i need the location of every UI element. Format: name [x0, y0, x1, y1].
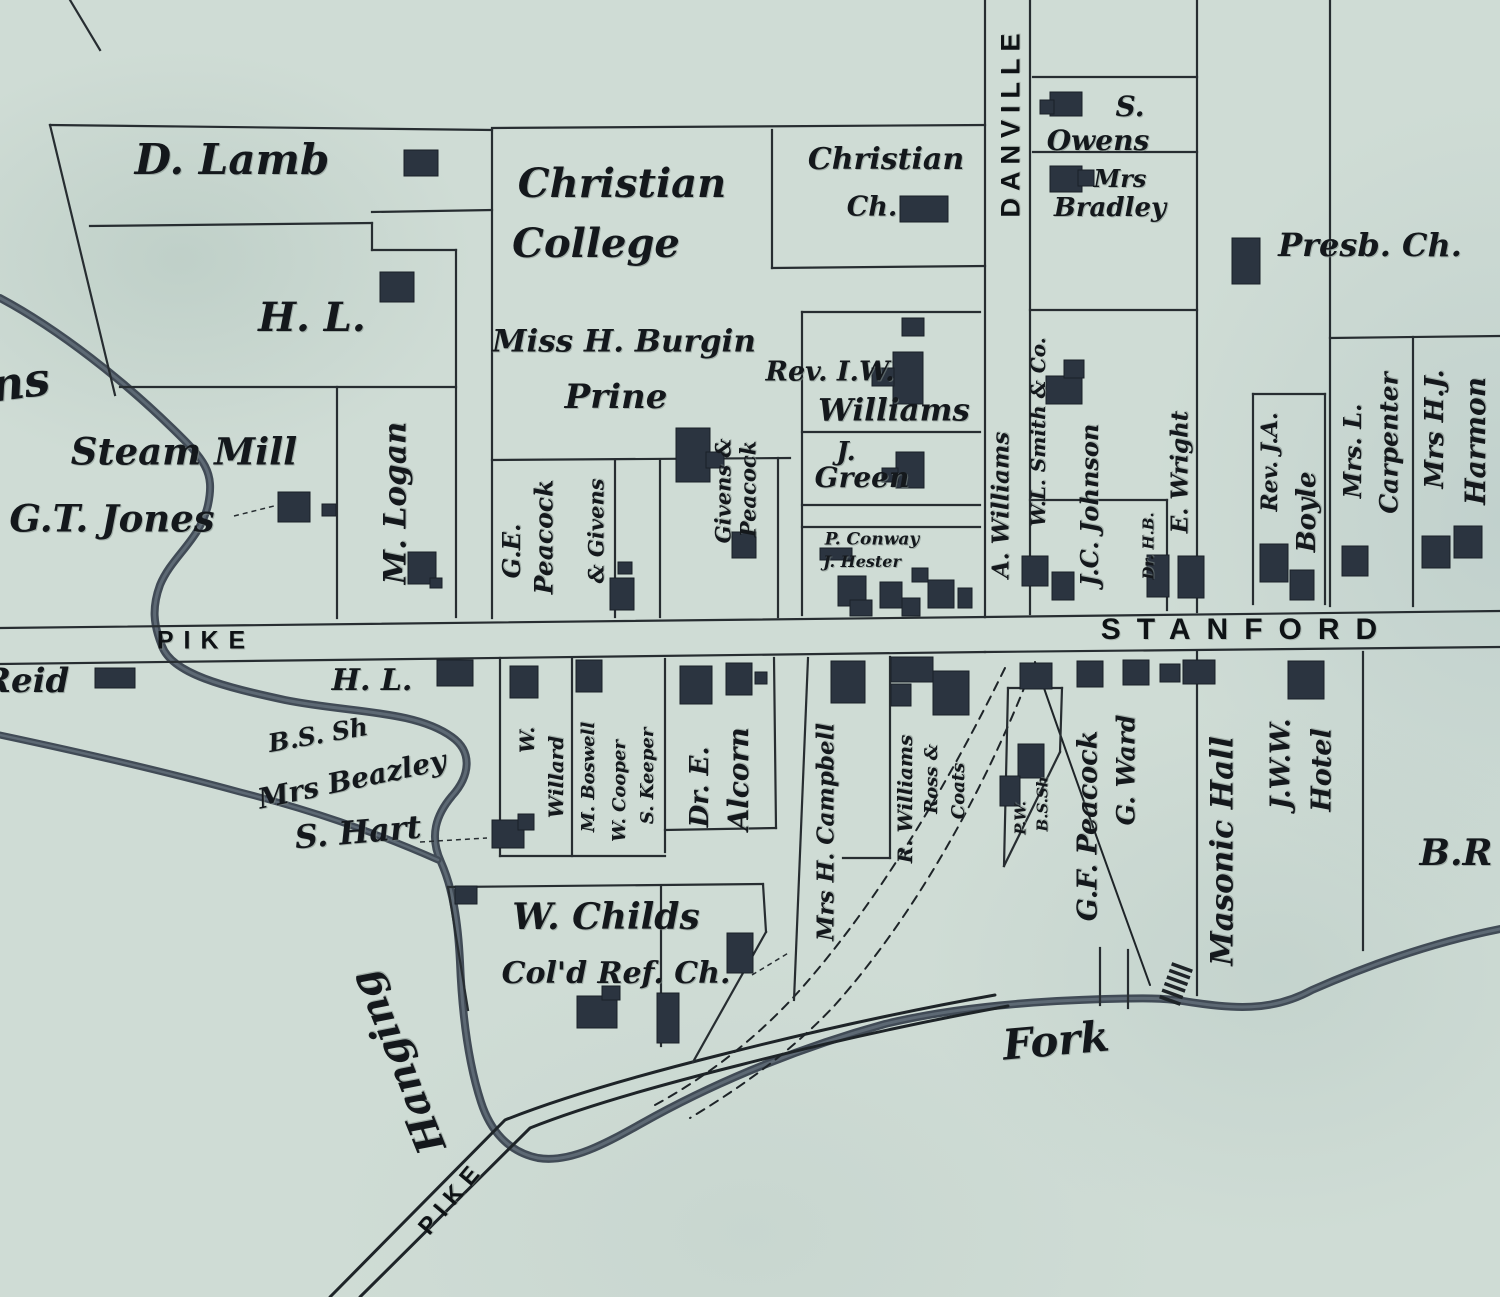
- map-label-gf-peacock: G.F. Peacock: [1075, 731, 1102, 922]
- map-label-williams: Williams: [818, 396, 970, 427]
- map-label-fork: Fork: [1001, 1015, 1111, 1066]
- map-label-bs-sh: B.S. Sh: [266, 714, 369, 756]
- map-label-ge-peacock-line2: Peacock: [532, 480, 557, 595]
- map-label-boyle: Boyle: [1294, 472, 1320, 553]
- map-label-j-hester: J. Hester: [823, 554, 901, 570]
- map-label-mrs-hj: Mrs H.J.: [1422, 369, 1448, 488]
- map-label-s-owens-line2: Owens: [1047, 127, 1149, 155]
- map-label-dr-e: Dr. E.: [687, 747, 713, 828]
- map-label-m-boswell: M. Boswell: [580, 722, 598, 832]
- map-label-jc-johnson: J.C. Johnson: [1078, 424, 1102, 586]
- map-label-rev-ja: Rev. J.A.: [1259, 412, 1281, 511]
- map-label-bs-sh-south: B.S.Sh: [1036, 776, 1051, 831]
- map-label-street-pike-south: PIKE: [415, 1157, 490, 1240]
- map-label-w-willard-line1: W.: [517, 727, 537, 753]
- map-label-g-ward: G. Ward: [1114, 715, 1139, 826]
- map-label-br-partial: B.R: [1420, 835, 1493, 871]
- map-label-layer: nsD. LambH. L.ChristianCollegeChristianC…: [0, 0, 1500, 1297]
- map-label-alcorn: Alcorn: [725, 727, 753, 830]
- map-label-gt-jones: G.T. Jones: [9, 501, 214, 538]
- map-label-jww: J.W.W.: [1268, 718, 1295, 809]
- town-plat-map: nsD. LambH. L.ChristianCollegeChristianC…: [0, 0, 1500, 1297]
- map-label-harmon: Harmon: [1462, 377, 1490, 505]
- map-label-street-danville: DANVILLE: [998, 27, 1025, 218]
- map-label-mrs-bradley-line2: Bradley: [1054, 195, 1166, 221]
- map-label-pw: P.W.: [1014, 801, 1029, 835]
- map-label-d-lamb: D. Lamb: [135, 139, 330, 181]
- map-label-ge-peacock-line3: & Givens: [586, 479, 607, 584]
- map-label-hanging: Hanging: [343, 965, 452, 1159]
- map-label-miss-burgin: Miss H. Burgin: [492, 327, 756, 358]
- map-label-street-pike-west: PIKE: [157, 629, 255, 654]
- map-label-r-williams: R. Williams: [895, 735, 915, 863]
- map-label-carpenter: Carpenter: [1377, 372, 1402, 513]
- map-label-presb-ch: Presb. Ch.: [1278, 229, 1462, 261]
- map-label-ross: Ross &: [923, 744, 941, 814]
- map-label-givens-peacock-line2: Peacock: [738, 441, 759, 537]
- map-label-coats: Coats: [950, 763, 968, 819]
- map-label-mrs-bradley-line1: Mrs: [1094, 167, 1147, 191]
- map-label-dr-hb: Dr. H.B.: [1142, 512, 1157, 579]
- map-label-w-willard-line2: Willard: [546, 736, 566, 818]
- map-label-mrs-campbell: Mrs H. Campbell: [815, 723, 838, 941]
- map-label-christian-college-line2: College: [512, 224, 680, 264]
- map-label-s-keeper: S. Keeper: [639, 728, 657, 825]
- map-label-reid: Reid: [0, 664, 69, 698]
- map-label-masonic-hall: Masonic Hall: [1208, 736, 1239, 965]
- map-label-j-green-line2: Green: [815, 464, 910, 492]
- map-label-prine: Prine: [565, 380, 668, 414]
- map-label-rev-iw: Rev. I.W.: [766, 359, 895, 386]
- map-label-hotel: Hotel: [1309, 728, 1336, 811]
- map-label-m-logan: M. Logan: [381, 422, 412, 585]
- map-label-a-williams: A. Williams: [990, 432, 1013, 578]
- map-label-wl-smith: W.L. Smith & Co.: [1028, 337, 1048, 526]
- map-label-mrs-beazley: Mrs Beazley: [255, 746, 448, 813]
- map-label-s-hart: S. Hart: [293, 811, 422, 854]
- map-label-s-owens-line1: S.: [1116, 93, 1145, 121]
- map-label-steam-mill: Steam Mill: [71, 434, 297, 471]
- map-label-e-wright: E. Wright: [1169, 411, 1192, 534]
- map-label-christian-college-line1: Christian: [518, 164, 726, 204]
- map-label-ns-partial: ns: [0, 355, 53, 409]
- map-label-ge-peacock-line1: G.E.: [500, 524, 524, 579]
- map-label-w-childs: W. Childs: [512, 899, 700, 935]
- map-label-h-l-north: H. L.: [258, 298, 366, 338]
- map-label-christian-church-line2: Ch.: [847, 194, 898, 221]
- map-label-mrs-l: Mrs. L.: [1341, 404, 1365, 499]
- map-label-christian-church-line1: Christian: [808, 145, 964, 175]
- map-label-cold-ref-ch: Col'd Ref. Ch.: [502, 959, 731, 989]
- map-label-h-l-south: H. L.: [332, 666, 413, 696]
- map-label-w-cooper: W. Cooper: [611, 740, 629, 842]
- map-label-street-stanford: STANFORD: [1101, 615, 1393, 645]
- map-label-p-conway: P. Conway: [825, 532, 920, 549]
- map-label-givens-peacock-line1: Givens &: [713, 439, 734, 544]
